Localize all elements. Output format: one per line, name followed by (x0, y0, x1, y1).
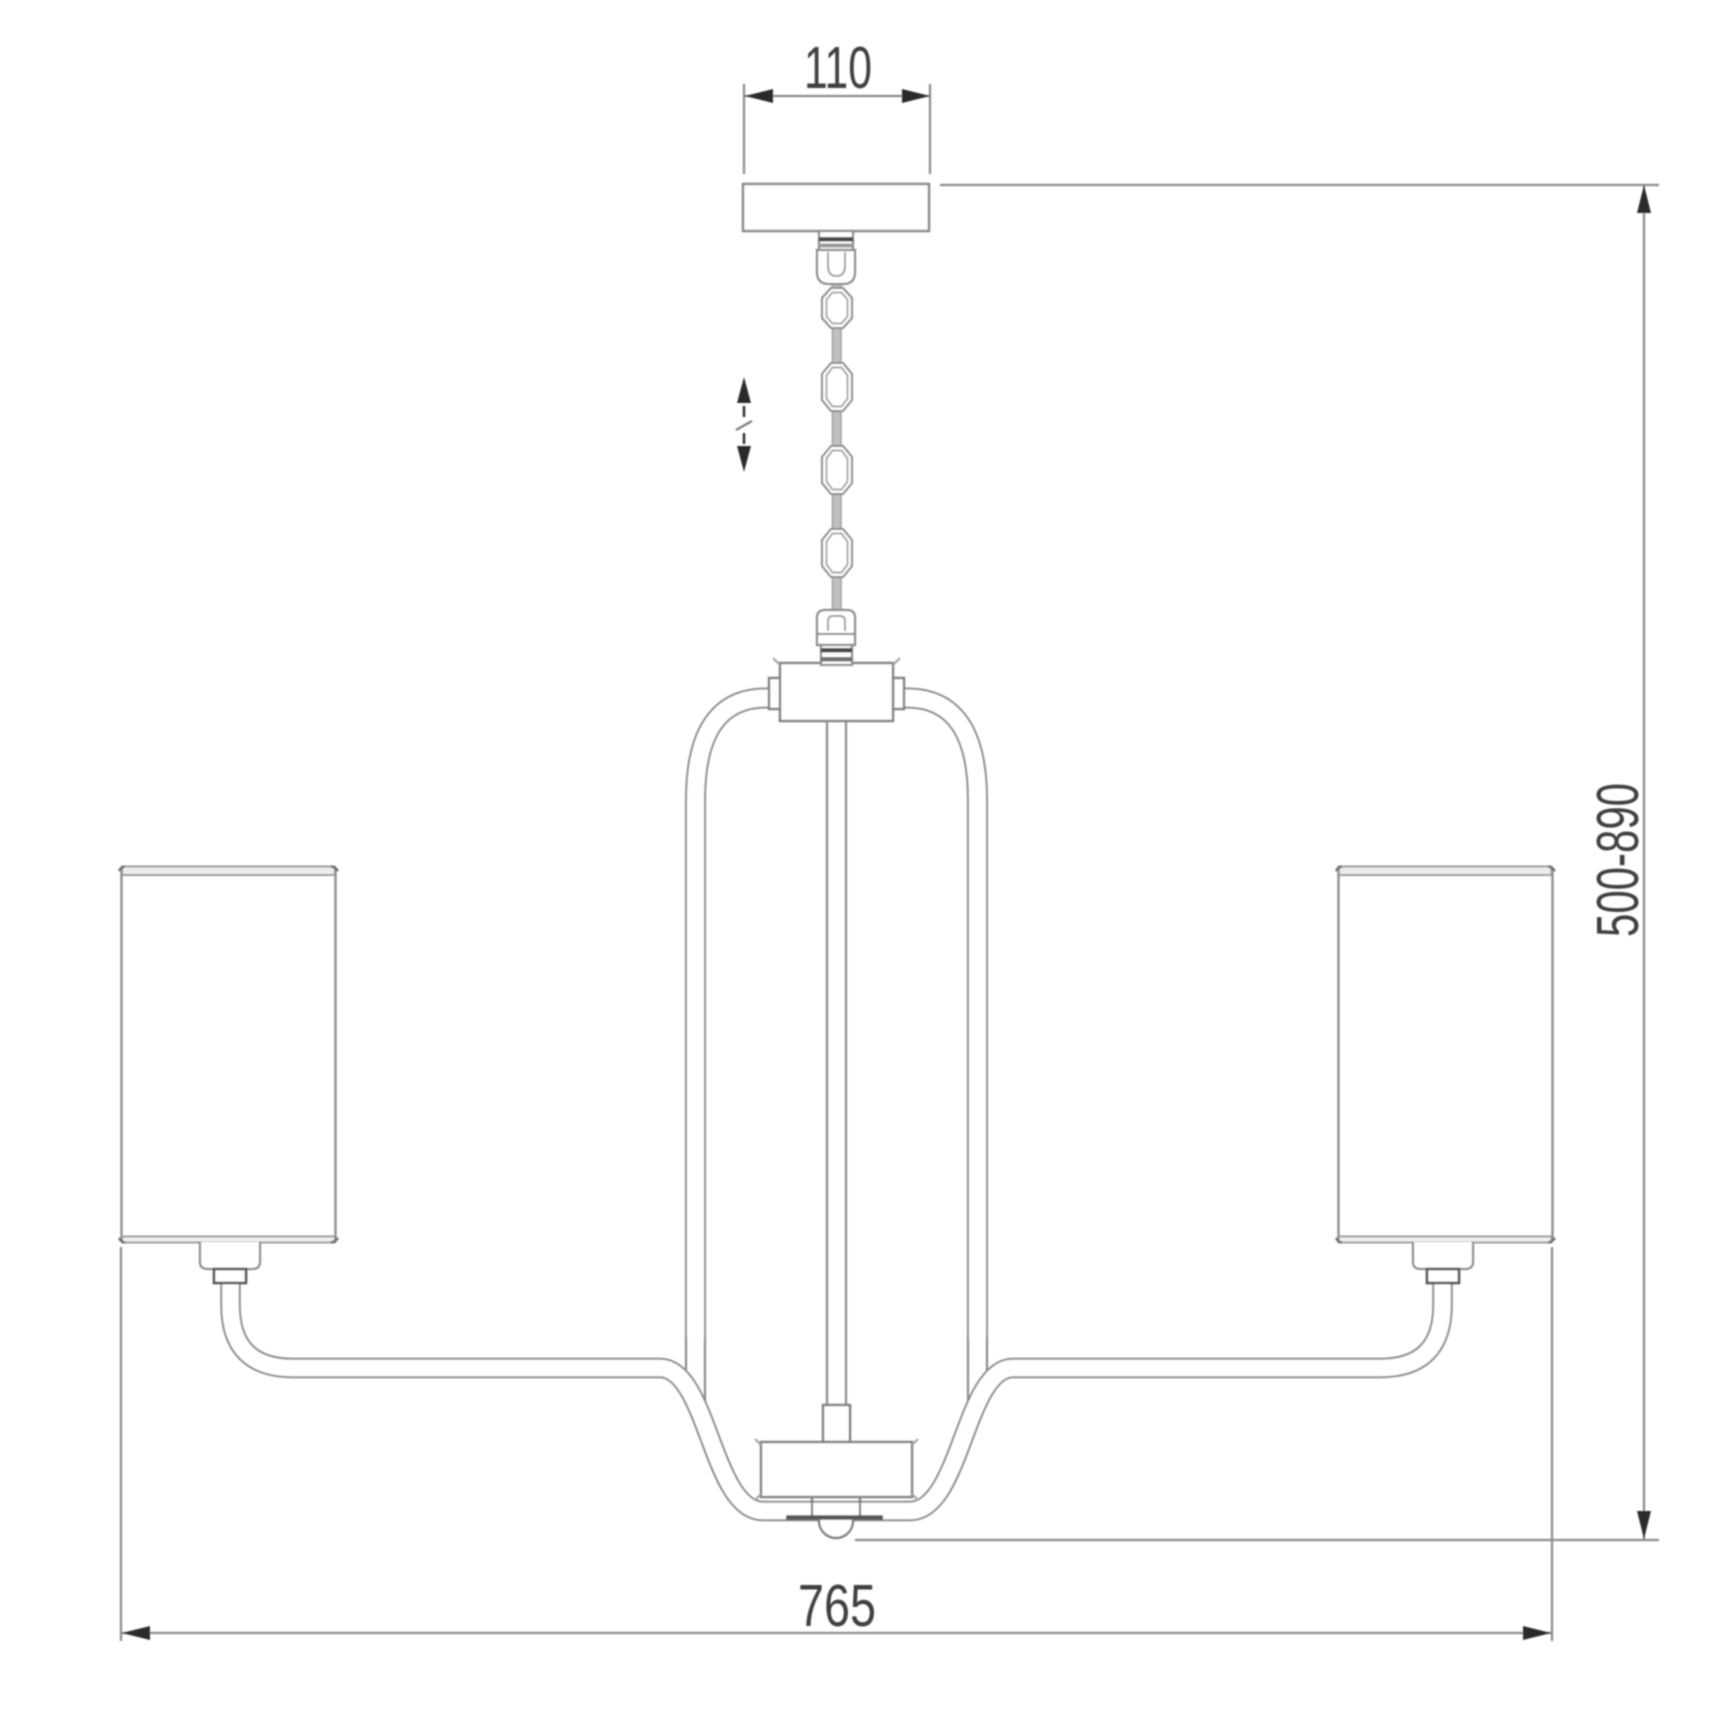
svg-text:500-890: 500-890 (1585, 783, 1651, 937)
svg-text:110: 110 (804, 35, 872, 101)
svg-text:765: 765 (798, 1573, 876, 1639)
